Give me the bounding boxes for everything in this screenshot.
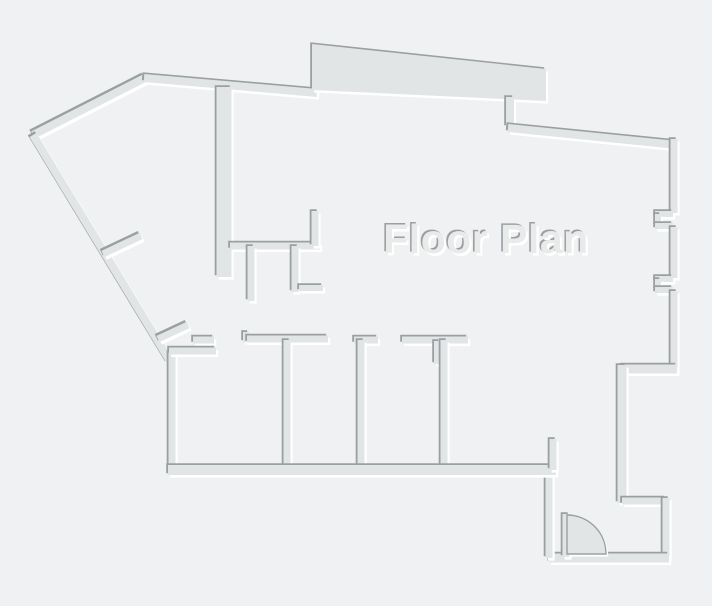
room-divider2 — [359, 338, 363, 469]
interior-horizontal-wall — [228, 244, 322, 248]
interior-dash-wall — [297, 286, 325, 290]
rooms-bottom-wall — [166, 468, 558, 472]
floor-plan: Floor PlanFloor PlanFloor Plan — [0, 0, 712, 606]
floor-plan-title: Floor PlanFloor PlanFloor Plan — [382, 214, 591, 264]
interior-hanging-wall2 — [293, 244, 297, 294]
interior-hanging-wall1 — [249, 244, 253, 303]
interior-main-vertical-wall — [222, 85, 226, 279]
entry-left-wall — [547, 467, 551, 560]
floor-plan-canvas: Floor PlanFloor PlanFloor Plan — [0, 0, 712, 606]
entry-right-wall — [664, 496, 668, 560]
right-wall-middle — [672, 225, 676, 280]
room-divider1 — [285, 338, 289, 469]
corridor-dash-wall — [191, 338, 216, 342]
t-wall-hanging-stub — [435, 339, 439, 366]
right-jog-wall — [620, 367, 679, 371]
bottom-wall-end-stub — [551, 437, 555, 472]
floor-plan-title-text: Floor Plan — [383, 216, 588, 262]
right-wall-bottom — [620, 363, 624, 505]
west-vertical-wall — [170, 350, 174, 471]
interior-stub-up — [313, 209, 317, 248]
right-wall-lower — [672, 289, 676, 374]
room1-top-wall — [167, 349, 218, 353]
right-wall-upper — [672, 137, 676, 215]
room-divider3 — [442, 338, 446, 469]
